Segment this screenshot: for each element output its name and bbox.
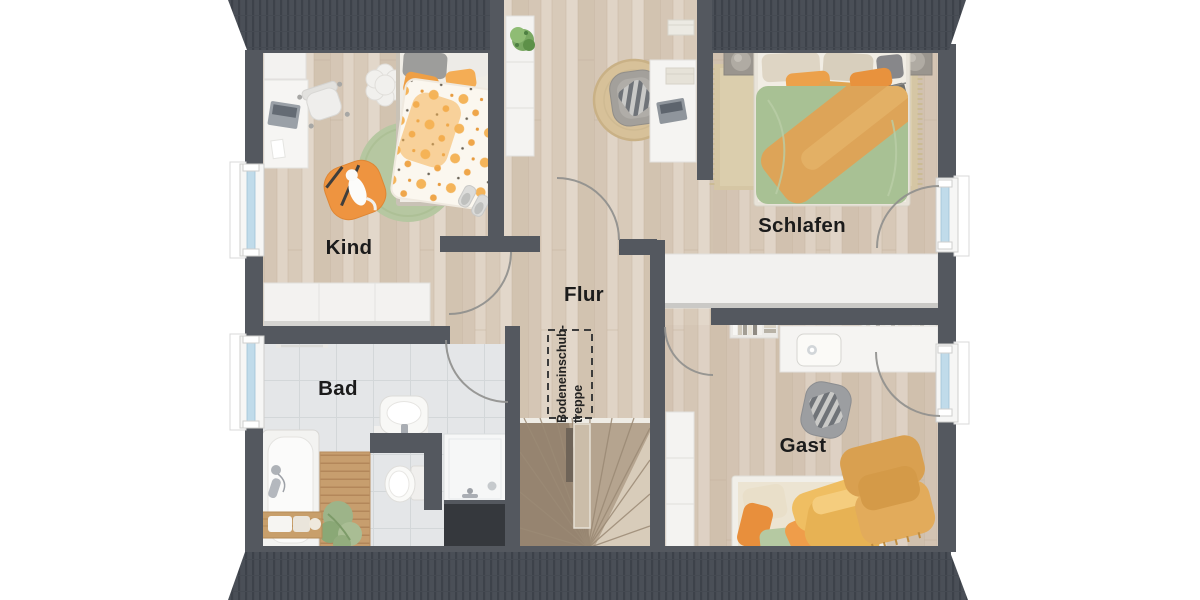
floor-plan: Kind Schlafen Flur Bad Gast Bodeneinschu… — [0, 0, 1200, 600]
roof-band-top-left — [228, 0, 490, 50]
wall-schlafen-west — [697, 0, 713, 180]
wall-left-outer — [245, 50, 263, 552]
wall-bad-north — [245, 326, 450, 344]
stair-gap — [566, 428, 573, 482]
wall-sink-stub — [370, 433, 442, 453]
sink — [374, 396, 428, 438]
floor-plan-drawing — [0, 0, 1200, 600]
shower — [444, 434, 506, 504]
gast-wardrobe — [666, 412, 694, 552]
wall-schlafen-gast — [711, 308, 938, 325]
window-kind — [230, 162, 264, 258]
window-schlafen — [936, 176, 969, 256]
wall-toilet-nook — [424, 451, 442, 510]
wall-bad-east — [505, 326, 520, 552]
gast-desk — [780, 326, 938, 372]
window-bad — [230, 334, 264, 430]
kind-bed — [390, 42, 502, 210]
wall-kind-south-stub-west — [440, 236, 488, 252]
wall-kind-south-stub-east — [504, 236, 540, 252]
bathtub — [258, 430, 322, 552]
stair-newel — [574, 424, 590, 528]
kind-sideboard — [264, 283, 430, 326]
knee-wall-void — [444, 504, 506, 552]
toilet — [385, 466, 426, 502]
kind-desk — [264, 52, 308, 168]
window-gast — [936, 342, 969, 424]
bath-caddy — [258, 512, 322, 538]
staircase — [520, 418, 650, 552]
roof-band-bottom — [228, 552, 968, 600]
wall-right-outer — [938, 44, 956, 552]
roof-band-top-right — [712, 0, 966, 50]
built-in-wardrobe — [657, 254, 938, 308]
wall-kind-east — [488, 0, 504, 252]
laptop-icon — [267, 101, 300, 129]
wall-stair-gast — [650, 240, 665, 552]
double-bed — [754, 40, 935, 210]
